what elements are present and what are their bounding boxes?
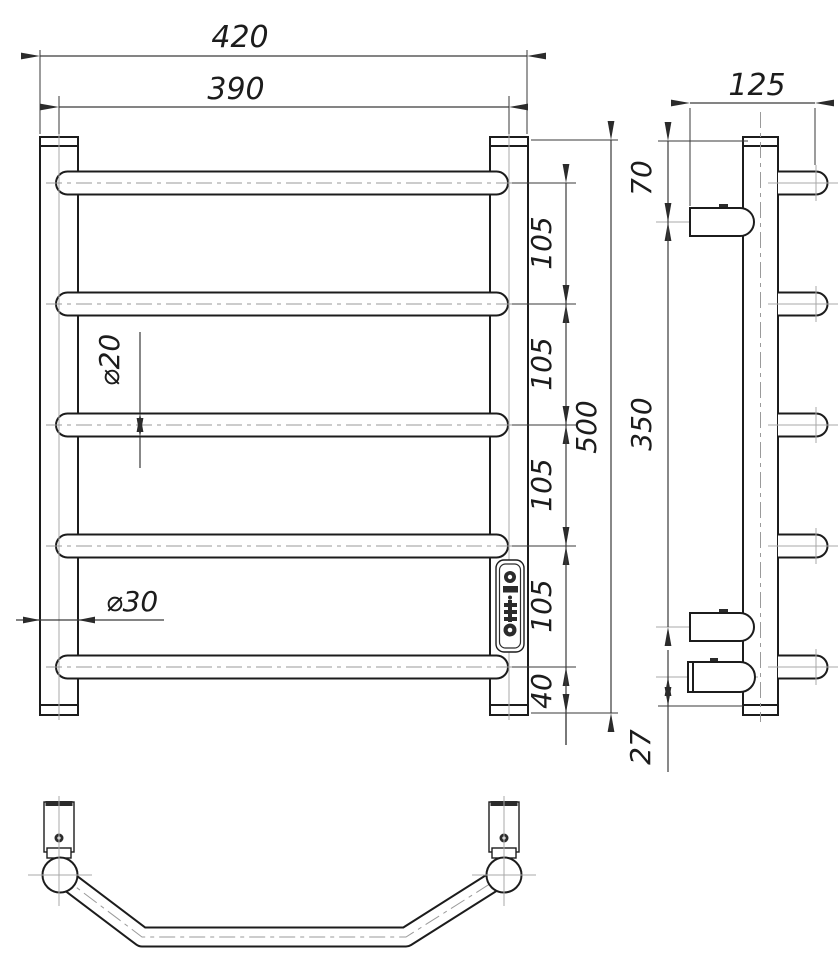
dim-top-to-bracket-label: 70 (625, 160, 658, 196)
bottom-view (28, 796, 536, 937)
dim-centers-width-label: 390 (207, 72, 264, 107)
technical-drawing-page: 420 390 500 105 105 (0, 0, 838, 968)
plan-centerlines (28, 796, 536, 906)
dim-rail-spacing-3: 105 (525, 458, 558, 511)
side-view: 125 70 350 27 (624, 68, 838, 772)
dim-bracket-span-label: 350 (625, 397, 658, 450)
wall-bracket-bottom (690, 613, 754, 641)
dim-overall-height-label: 500 (570, 400, 603, 453)
dim-rail-diameter: ⌀20 (93, 332, 140, 468)
dim-post-diameter: ⌀30 (16, 585, 164, 623)
heating-element (693, 662, 755, 692)
dim-element-offset-label: 27 (624, 729, 657, 765)
dim-post-diameter-label: ⌀30 (106, 585, 159, 618)
wall-bracket-top (690, 208, 754, 236)
dim-overall-width: 420 (40, 20, 527, 134)
dim-bracket-span: 350 (625, 222, 668, 627)
dim-rail-spacing-2: 105 (525, 337, 558, 390)
towel-rail-drawing: 420 390 500 105 105 (0, 0, 838, 968)
dim-bottom-offset-label: 40 (525, 673, 558, 709)
dim-overall-width-label: 420 (211, 20, 268, 55)
heating-element-cap (688, 662, 693, 692)
dim-depth-label: 125 (728, 68, 785, 103)
dim-rail-spacing-4: 105 (525, 579, 558, 632)
dim-centers-width: 390 (59, 72, 509, 134)
front-view: 420 390 500 105 105 (16, 20, 618, 745)
curved-rail-tube (60, 875, 504, 937)
dim-rail-spacing-1: 105 (525, 216, 558, 269)
brand-label (496, 560, 524, 652)
dim-rail-diameter-label: ⌀20 (93, 334, 126, 387)
